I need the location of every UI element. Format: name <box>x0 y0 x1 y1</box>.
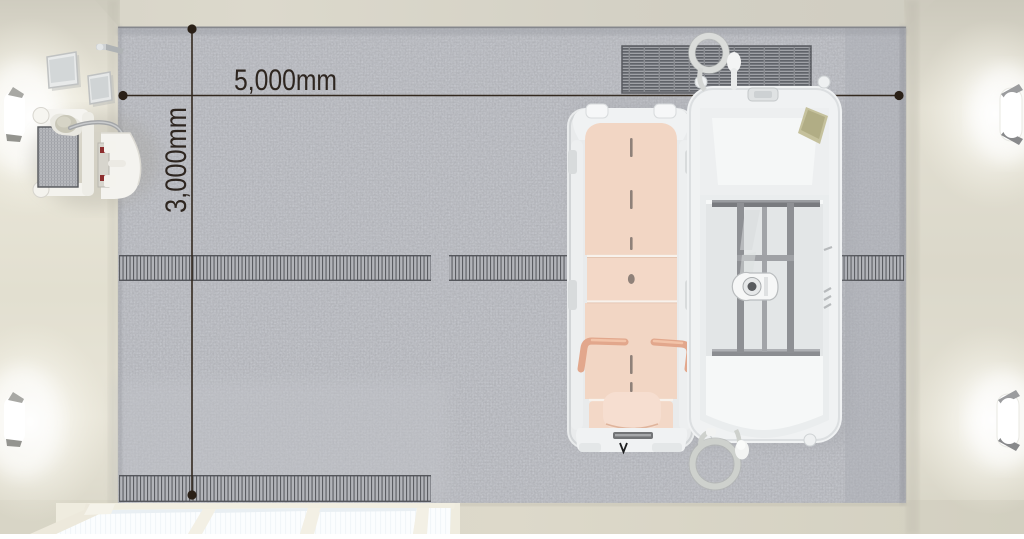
svg-text:5,000mm: 5,000mm <box>234 64 337 97</box>
svg-text:3,000mm: 3,000mm <box>160 107 193 213</box>
